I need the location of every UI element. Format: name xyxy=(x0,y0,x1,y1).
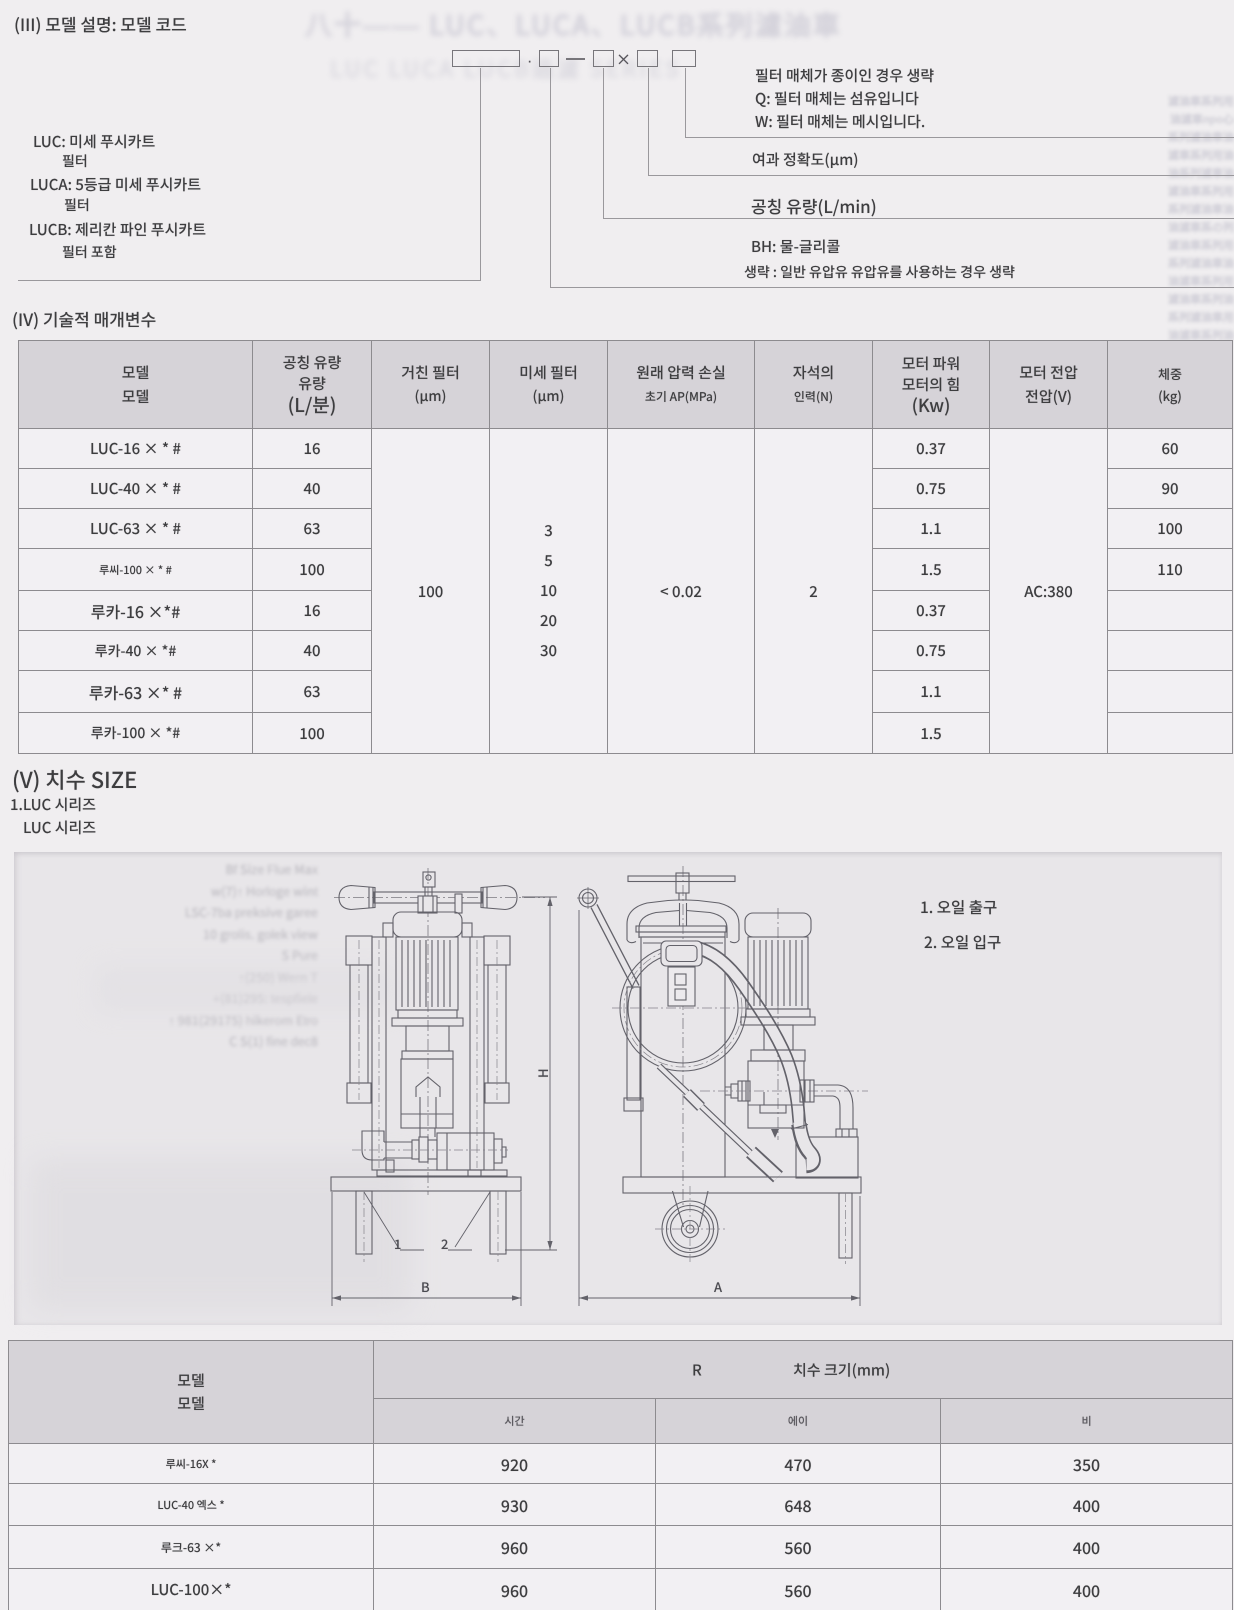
svg-text:H: H xyxy=(533,1068,552,1078)
svg-text:2: 2 xyxy=(441,1234,448,1253)
svg-text:A: A xyxy=(714,1277,723,1296)
svg-text:B: B xyxy=(421,1277,430,1296)
svg-text:1: 1 xyxy=(394,1234,401,1253)
